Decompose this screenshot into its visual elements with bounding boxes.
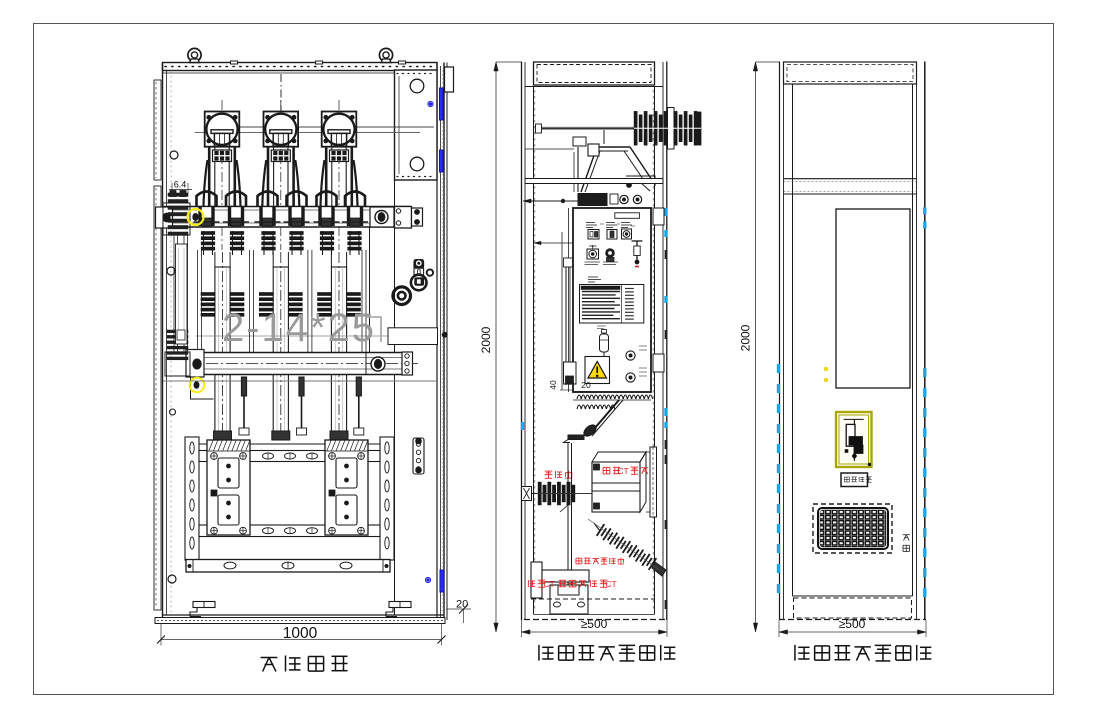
- svg-text:2000: 2000: [479, 326, 493, 353]
- svg-text:20: 20: [581, 380, 591, 390]
- svg-text:2000: 2000: [739, 324, 753, 351]
- svg-text:20: 20: [456, 599, 468, 611]
- svg-text:40: 40: [548, 380, 558, 390]
- svg-text:CT: CT: [605, 579, 616, 589]
- svg-text:6.4: 6.4: [174, 180, 187, 190]
- svg-text:2-14*25: 2-14*25: [222, 306, 376, 350]
- svg-text:CT: CT: [543, 579, 554, 589]
- svg-text:CT: CT: [617, 466, 628, 476]
- svg-text:≥500: ≥500: [581, 617, 608, 631]
- svg-text:1000: 1000: [283, 625, 318, 642]
- svg-text:≥500: ≥500: [839, 617, 866, 631]
